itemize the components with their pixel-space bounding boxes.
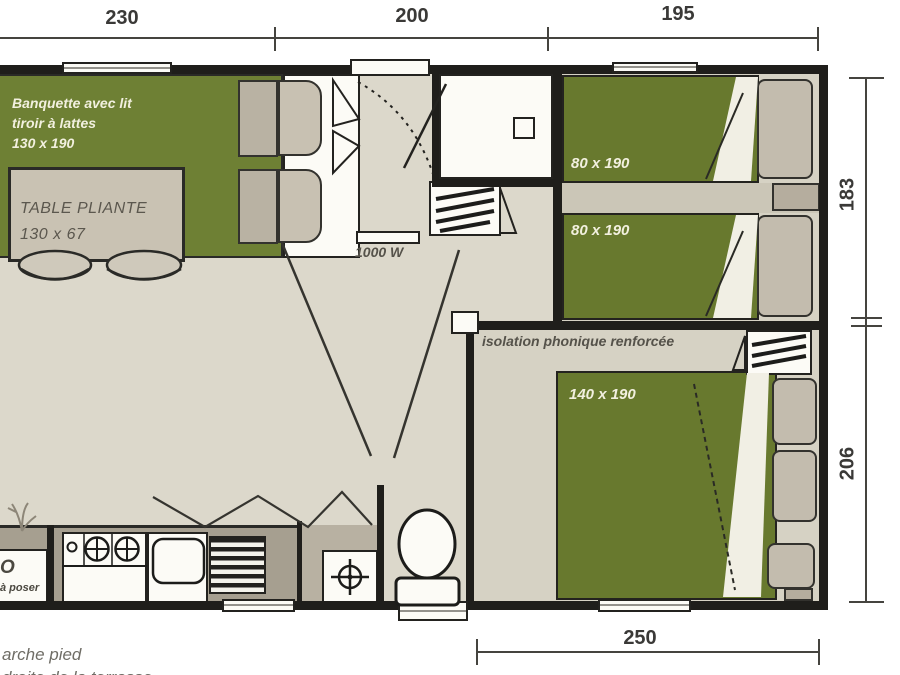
water-heater: [322, 550, 378, 604]
shower-drain: [513, 117, 535, 139]
wall-bedroom2-left: [466, 330, 474, 601]
electric-heater: [356, 231, 420, 244]
wall-fridge-divider: [47, 525, 54, 601]
wall-shower-bottom: [432, 179, 562, 187]
footnote-line1: arche pied: [2, 645, 81, 665]
dim-top-195: 195: [638, 3, 718, 26]
terrace-door-step: [398, 601, 468, 621]
table-label-line1: TABLE PLIANTE: [20, 196, 180, 222]
wall-isolation: [479, 321, 819, 330]
hall-wardrobe: [429, 181, 501, 236]
banquette-label-line3: 130 x 190: [12, 133, 192, 153]
floor-plan: 230 200 195 183 206 250 Banquette avec l…: [0, 0, 900, 675]
banquette-cushion: [278, 80, 322, 156]
fridge-label-line1: O: [0, 557, 15, 579]
window-double-bedroom: [598, 599, 691, 612]
wall-wc-niche: [377, 485, 384, 601]
bedroom-wardrobe: [746, 330, 812, 375]
banquette-label-line2: tiroir à lattes: [12, 113, 192, 133]
sink-unit: [147, 532, 208, 605]
pillow: [767, 543, 815, 589]
wall-hall-bedroom: [553, 74, 562, 330]
entrance-door: [350, 59, 430, 76]
stove: [62, 532, 147, 605]
banquette-label: Banquette avec lit tiroir à lattes 130 x…: [12, 93, 192, 153]
window-living: [62, 62, 172, 74]
bed1-size-label: 80 x 190: [571, 154, 629, 174]
dim-right-206: 206: [837, 434, 860, 494]
dim-right-183: 183: [837, 165, 860, 225]
window-kitchen: [222, 599, 295, 612]
heater-label: 1000 W: [355, 244, 403, 260]
pillow: [757, 79, 813, 179]
bed-step: [784, 588, 813, 601]
wall-right: [819, 65, 828, 610]
bed2-size-label: 80 x 190: [571, 221, 629, 241]
wall-shower-left: [432, 74, 439, 184]
pillow: [772, 378, 817, 445]
banquette-label-line1: Banquette avec lit: [12, 93, 192, 113]
nightstand: [772, 183, 820, 211]
dim-top-200: 200: [372, 5, 452, 28]
fridge-label-line2: à poser: [0, 582, 39, 594]
footnote-line2: droite de la terrasse: [2, 668, 152, 675]
door-double-bedroom: [451, 311, 479, 334]
banquette-cushion: [238, 80, 278, 157]
double-bed-size-label: 140 x 190: [569, 385, 636, 405]
table-label-line2: 130 x 67: [20, 222, 180, 248]
drainer-rack: [209, 536, 266, 594]
isolation-label: isolation phonique renforcée: [482, 333, 674, 349]
double-bed: [556, 371, 777, 600]
pillow: [772, 450, 817, 522]
dim-bottom-250: 250: [600, 627, 680, 650]
banquette-cushion: [238, 169, 278, 244]
wall-kitchen-end: [297, 521, 302, 601]
pillow: [757, 215, 813, 317]
dim-top-230: 230: [82, 7, 162, 30]
table-label: TABLE PLIANTE 130 x 67: [20, 196, 180, 248]
window-twin-bedroom: [612, 62, 698, 73]
shower-room: [439, 74, 553, 179]
banquette-cushion: [278, 169, 322, 243]
